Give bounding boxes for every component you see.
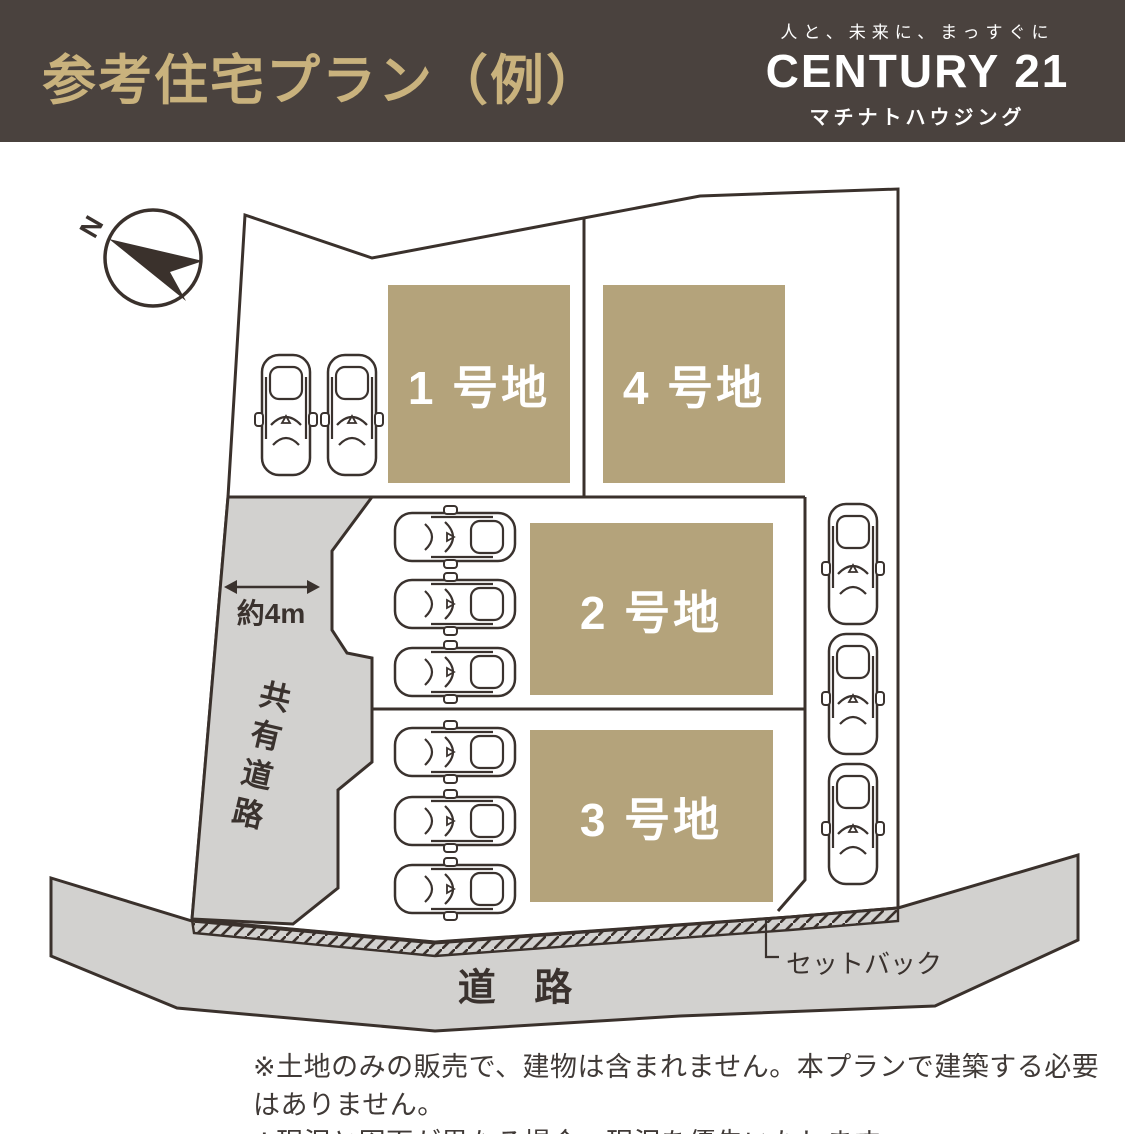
footer-notes: ※土地のみの販売で、建物は含まれません。本プランで建築する必要はありません。 ※…: [253, 1048, 1125, 1134]
car-icon: [395, 573, 515, 635]
note-line: ※現況と図面が異なる場合、現況を優先いたします。: [253, 1124, 1125, 1134]
lot-2-label: 2 号地: [580, 577, 722, 643]
car-icon: [822, 504, 884, 624]
lot-1-label: 1 号地: [408, 352, 550, 418]
car-icon: [395, 721, 515, 783]
setback-label: セットバック: [786, 944, 942, 981]
car-icon: [395, 506, 515, 568]
lot-4-label: 4 号地: [623, 352, 765, 418]
shared-road-width-label: 約4m: [237, 592, 305, 632]
car-icon: [395, 641, 515, 703]
note-line: ※土地のみの販売で、建物は含まれません。本プランで建築する必要はありません。: [253, 1048, 1125, 1124]
page: 参考住宅プラン（例） 人と、未来に、まっすぐに CENTURY 21 マチナトハ…: [0, 0, 1125, 1134]
car-icon: [395, 858, 515, 920]
compass-icon: [105, 210, 203, 306]
road-label: 道 路: [458, 957, 587, 1012]
car-icon: [822, 764, 884, 884]
lot-3-label: 3 号地: [580, 784, 722, 850]
car-icon: [395, 790, 515, 852]
car-icon: [255, 355, 317, 475]
car-icon: [822, 634, 884, 754]
car-icon: [321, 355, 383, 475]
